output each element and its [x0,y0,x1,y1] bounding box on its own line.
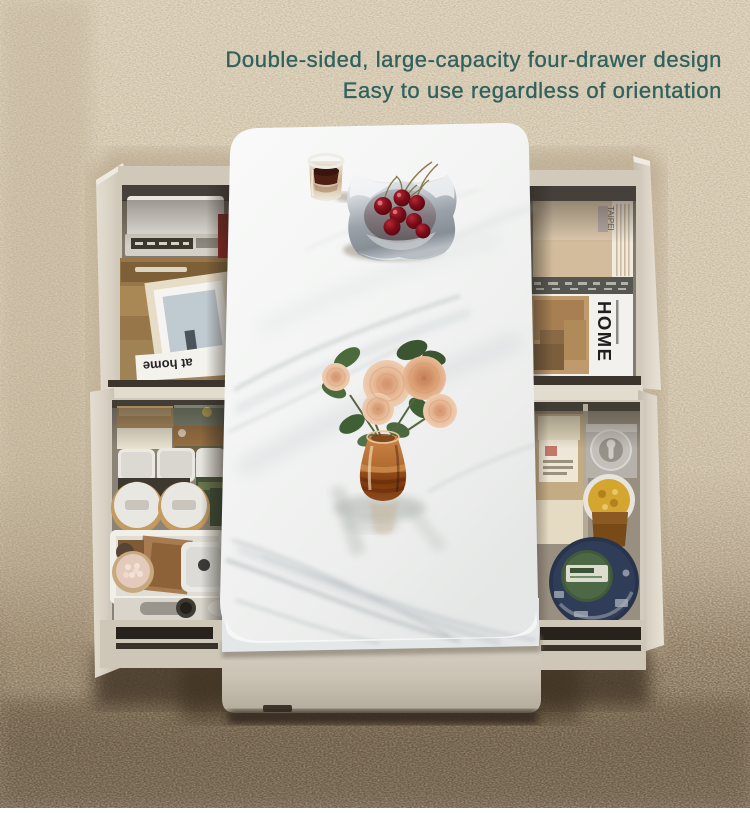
svg-text:Easy to use regardless of orie: Easy to use regardless of orientation [343,78,722,103]
svg-text:Double-sided, large-capacity f: Double-sided, large-capacity four-drawer… [225,47,722,72]
svg-text:HOME: HOME [594,301,615,363]
